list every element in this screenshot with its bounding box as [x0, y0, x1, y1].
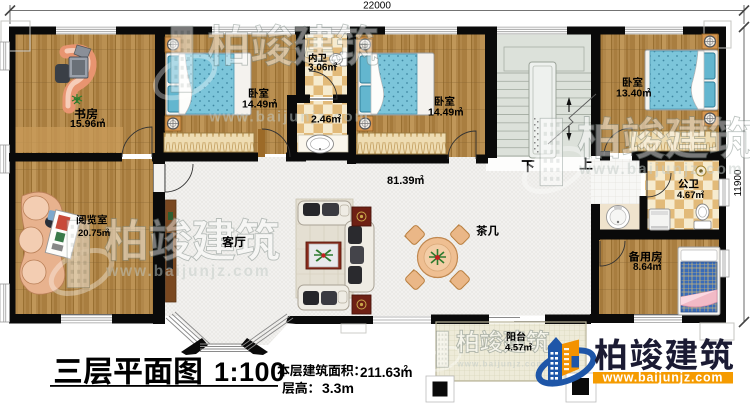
svg-text:2: 2 [529, 343, 532, 349]
svg-text:2: 2 [106, 229, 109, 235]
svg-text:www.baijunjz.com: www.baijunjz.com [208, 109, 370, 126]
svg-text:2.46m: 2.46m [311, 114, 341, 126]
svg-text:www.baijunjz.com: www.baijunjz.com [578, 161, 743, 178]
svg-text:www.baijunjz.com: www.baijunjz.com [602, 371, 724, 385]
svg-text:4.57m: 4.57m [505, 343, 532, 354]
svg-text:2: 2 [404, 364, 409, 373]
svg-text:2: 2 [420, 175, 424, 182]
svg-text:1:100: 1:100 [214, 357, 286, 387]
svg-text:4.67m: 4.67m [677, 190, 704, 201]
svg-text:www.baijunjz.com: www.baijunjz.com [456, 359, 545, 368]
svg-text:3.3m: 3.3m [322, 380, 354, 396]
svg-text:2: 2 [701, 191, 704, 197]
svg-text:www.baijunjz.com: www.baijunjz.com [105, 263, 270, 280]
svg-text:81.39m: 81.39m [387, 175, 425, 187]
svg-text:3.06m: 3.06m [308, 63, 336, 74]
svg-text:22000: 22000 [363, 1, 391, 12]
